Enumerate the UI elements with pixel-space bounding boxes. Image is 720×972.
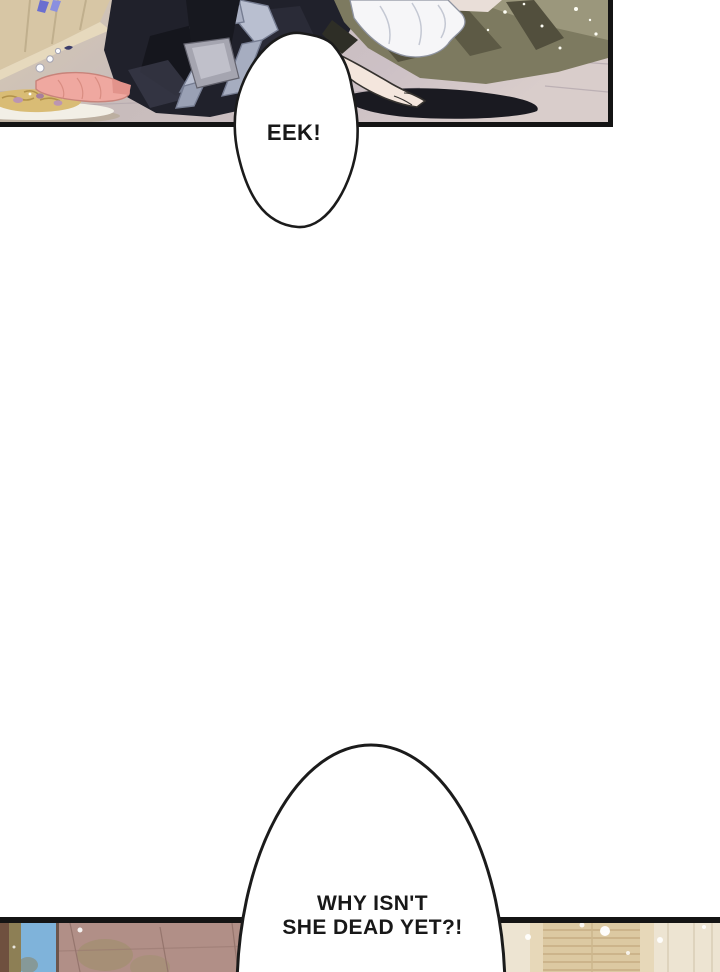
speech-bubble-eek-text: EEK! <box>218 120 370 146</box>
speech-bubble-why-text: WHY ISN'T SHE DEAD YET?! <box>225 892 520 939</box>
speech-bubble-why: WHY ISN'T SHE DEAD YET?! <box>225 741 520 972</box>
comic-page: EEK! WHY ISN'T SHE DEAD YET?! <box>0 0 720 972</box>
speech-bubble-eek: EEK! <box>218 26 370 238</box>
speech-bubble-why-line1: WHY ISN'T <box>225 892 520 916</box>
speech-bubble-why-line2: SHE DEAD YET?! <box>225 916 520 940</box>
